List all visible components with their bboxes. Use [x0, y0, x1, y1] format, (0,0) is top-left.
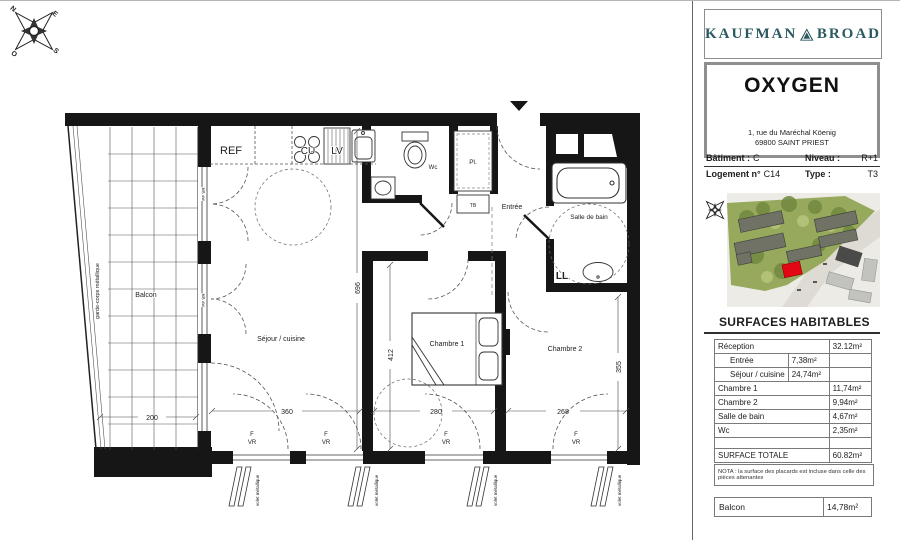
guardrail-label: garde-corps métallique: [95, 263, 101, 319]
nota-note: NOTA : la surface des placards est inclu…: [714, 464, 874, 486]
entree-label: Entrée: [502, 204, 523, 211]
table-row: Wc 2,35m²: [715, 424, 872, 438]
brand-right: BROAD: [817, 26, 881, 43]
surfaces-title: SURFACES HABITABLES: [719, 315, 870, 329]
bathroom-label: Salle de bain: [570, 214, 608, 221]
entrance-arrow-icon: [510, 101, 528, 111]
bathroom-ducts: [556, 134, 617, 157]
svg-text:696: 696: [355, 282, 362, 294]
shutter-symbols: volet métallique volet métallique volet …: [229, 467, 622, 506]
table-row: Réception 32.12m²: [715, 340, 872, 354]
svg-text:VR: VR: [248, 440, 257, 446]
closet-label: Pl.: [469, 159, 477, 166]
address-line-2: 69800 SAINT PRIEST: [748, 138, 836, 148]
floor-plan: N E S O: [0, 1, 690, 540]
balcony-door-arcs: [211, 167, 279, 431]
batiment-label: Bâtiment :: [706, 153, 750, 163]
washing-machine-label: LL: [556, 271, 568, 282]
pf-vr-label-1: PF VR: [201, 187, 206, 201]
table-row-spacer: [715, 438, 872, 449]
site-map: [727, 193, 880, 307]
compass-e: E: [51, 10, 59, 19]
fridge-label: REF: [220, 145, 242, 157]
surfaces-title-rule: [704, 332, 880, 334]
svg-text:VR: VR: [322, 440, 331, 446]
svg-text:volet métallique: volet métallique: [493, 474, 498, 506]
svg-text:F: F: [444, 432, 448, 438]
unit-info: Bâtiment : C Niveau : R+1 Logement n° C1…: [704, 151, 880, 182]
site-compass-icon: [702, 197, 728, 223]
living-turning-circle: [255, 169, 331, 245]
info-panel: KAUFMAN BROAD OXYGEN 1, rue du Maréchal …: [692, 1, 900, 540]
balcony-surface-value: 14,78m²: [823, 498, 871, 516]
tb-label: TB: [470, 203, 477, 209]
svg-text:F: F: [324, 432, 328, 438]
balcony: [68, 126, 198, 450]
batiment-value: C: [753, 153, 760, 163]
svg-text:F: F: [574, 432, 578, 438]
svg-text:355: 355: [616, 361, 623, 373]
compass-s: S: [52, 47, 60, 56]
svg-text:360: 360: [281, 409, 293, 416]
cooktop-label: CU: [301, 146, 315, 157]
wc-toilet: [402, 132, 428, 168]
svg-text:280: 280: [430, 409, 442, 416]
bedroom2-door-arc: [508, 292, 548, 332]
address-line-1: 1, rue du Maréchal Köenig: [748, 128, 836, 138]
logement-value: C14: [764, 169, 781, 179]
entrance-door-arc: [497, 126, 540, 169]
bottom-windows: [233, 394, 608, 460]
svg-text:200: 200: [146, 415, 158, 422]
living-room-label: Séjour / cuisine: [257, 336, 305, 343]
floorplan-sheet: N E S O: [0, 0, 900, 540]
bathtub: [552, 163, 626, 203]
svg-text:volet métallique: volet métallique: [374, 474, 379, 506]
wc-handbasin: [371, 177, 395, 199]
brand-left: KAUFMAN: [705, 26, 797, 43]
balcony-label: Balcon: [135, 292, 157, 299]
svg-text:VR: VR: [572, 440, 581, 446]
niveau-label: Niveau :: [805, 153, 840, 163]
svg-text:VR: VR: [442, 440, 451, 446]
table-row: Entrée 7,38m²: [715, 354, 872, 368]
svg-text:268: 268: [557, 409, 569, 416]
balcony-surface-row: Balcon 14,78m²: [714, 497, 872, 517]
balcony-surface-label: Balcon: [715, 502, 823, 512]
bathroom-door-leaf: [524, 215, 549, 239]
residence-name: OXYGEN: [744, 74, 840, 98]
pf-vr-label-2: PF VR: [201, 293, 206, 307]
table-row: Chambre 1 11,74m²: [715, 382, 872, 396]
svg-text:volet métallique: volet métallique: [617, 474, 622, 506]
niveau-value: R+1: [861, 153, 878, 163]
residence-box: OXYGEN 1, rue du Maréchal Köenig 69800 S…: [704, 62, 880, 158]
svg-text:volet métallique: volet métallique: [255, 474, 260, 506]
brand-logo: KAUFMAN BROAD: [704, 9, 882, 59]
compass-rose-icon: N E S O: [0, 1, 71, 68]
table-row: Séjour / cuisine 24,74m²: [715, 368, 872, 382]
wc-door-leaf: [420, 203, 444, 227]
svg-text:F: F: [250, 432, 254, 438]
svg-text:412: 412: [388, 349, 395, 361]
brand-triangle-icon: [800, 28, 814, 41]
table-row-total: SURFACE TOTALE 60.82m²: [715, 449, 872, 463]
kitchen-sink: [352, 130, 375, 162]
window-type-labels: FVR FVR FVR FVR: [248, 432, 581, 446]
residence-address: 1, rue du Maréchal Köenig 69800 SAINT PR…: [748, 128, 836, 148]
bed: [412, 313, 502, 385]
table-row: Salle de bain 4,67m²: [715, 410, 872, 424]
surfaces-table: Réception 32.12m² Entrée 7,38m² Séjour /…: [714, 339, 872, 463]
type-label: Type :: [805, 169, 831, 179]
logement-label: Logement n°: [706, 169, 761, 179]
bathroom-basin: [583, 263, 613, 282]
bedroom2-label: Chambre 2: [548, 346, 583, 353]
compass-o: O: [9, 50, 18, 59]
table-row: Chambre 2 9,94m²: [715, 396, 872, 410]
bedroom1-label: Chambre 1: [430, 341, 465, 348]
dishwasher-label: LV: [331, 146, 343, 157]
unit-info-row-1: Bâtiment : C Niveau : R+1: [704, 151, 880, 167]
bedroom1-door-arc: [428, 259, 468, 299]
type-value: T3: [867, 169, 878, 179]
wc-label: Wc: [429, 165, 438, 171]
unit-info-row-2: Logement n° C14 Type : T3: [704, 167, 880, 182]
